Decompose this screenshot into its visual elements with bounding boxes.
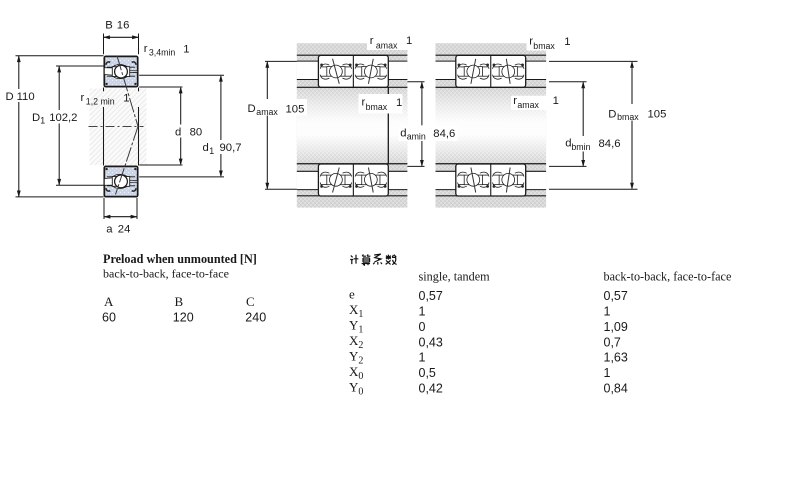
- svg-text:1,63: 1,63: [604, 351, 628, 365]
- svg-text:0,7: 0,7: [604, 335, 621, 349]
- svg-text:Preload when unmounted [N]: Preload when unmounted [N]: [103, 252, 257, 266]
- svg-text:105: 105: [286, 103, 305, 115]
- svg-text:240: 240: [245, 311, 266, 325]
- svg-text:d190,7: d190,7: [203, 142, 242, 156]
- svg-text:back-to-back, face-to-face: back-to-back, face-to-face: [604, 270, 732, 284]
- svg-text:D110: D110: [6, 91, 35, 103]
- svg-text:1,09: 1,09: [604, 320, 628, 334]
- svg-text:C: C: [246, 294, 255, 309]
- svg-text:0,84: 0,84: [604, 382, 628, 396]
- svg-text:e: e: [349, 287, 355, 302]
- svg-text:D1102,2: D1102,2: [32, 112, 77, 126]
- svg-text:a24: a24: [106, 223, 130, 235]
- svg-text:A: A: [104, 294, 114, 309]
- svg-text:0,57: 0,57: [419, 289, 443, 303]
- svg-text:1: 1: [419, 351, 426, 365]
- svg-text:1: 1: [604, 304, 611, 318]
- svg-text:0,57: 0,57: [604, 289, 628, 303]
- svg-text:0,5: 0,5: [419, 366, 436, 380]
- svg-text:0,42: 0,42: [419, 382, 443, 396]
- svg-text:1: 1: [604, 366, 611, 380]
- svg-text:single, tandem: single, tandem: [419, 270, 491, 284]
- svg-text:60: 60: [102, 311, 116, 325]
- svg-text:105: 105: [648, 108, 667, 120]
- svg-text:back-to-back, face-to-face: back-to-back, face-to-face: [103, 266, 229, 280]
- svg-text:1: 1: [419, 304, 426, 318]
- svg-text:B16: B16: [105, 20, 129, 32]
- svg-text:B: B: [175, 294, 184, 309]
- svg-text:0: 0: [419, 320, 426, 334]
- svg-text:0,43: 0,43: [419, 335, 443, 349]
- svg-text:120: 120: [173, 311, 194, 325]
